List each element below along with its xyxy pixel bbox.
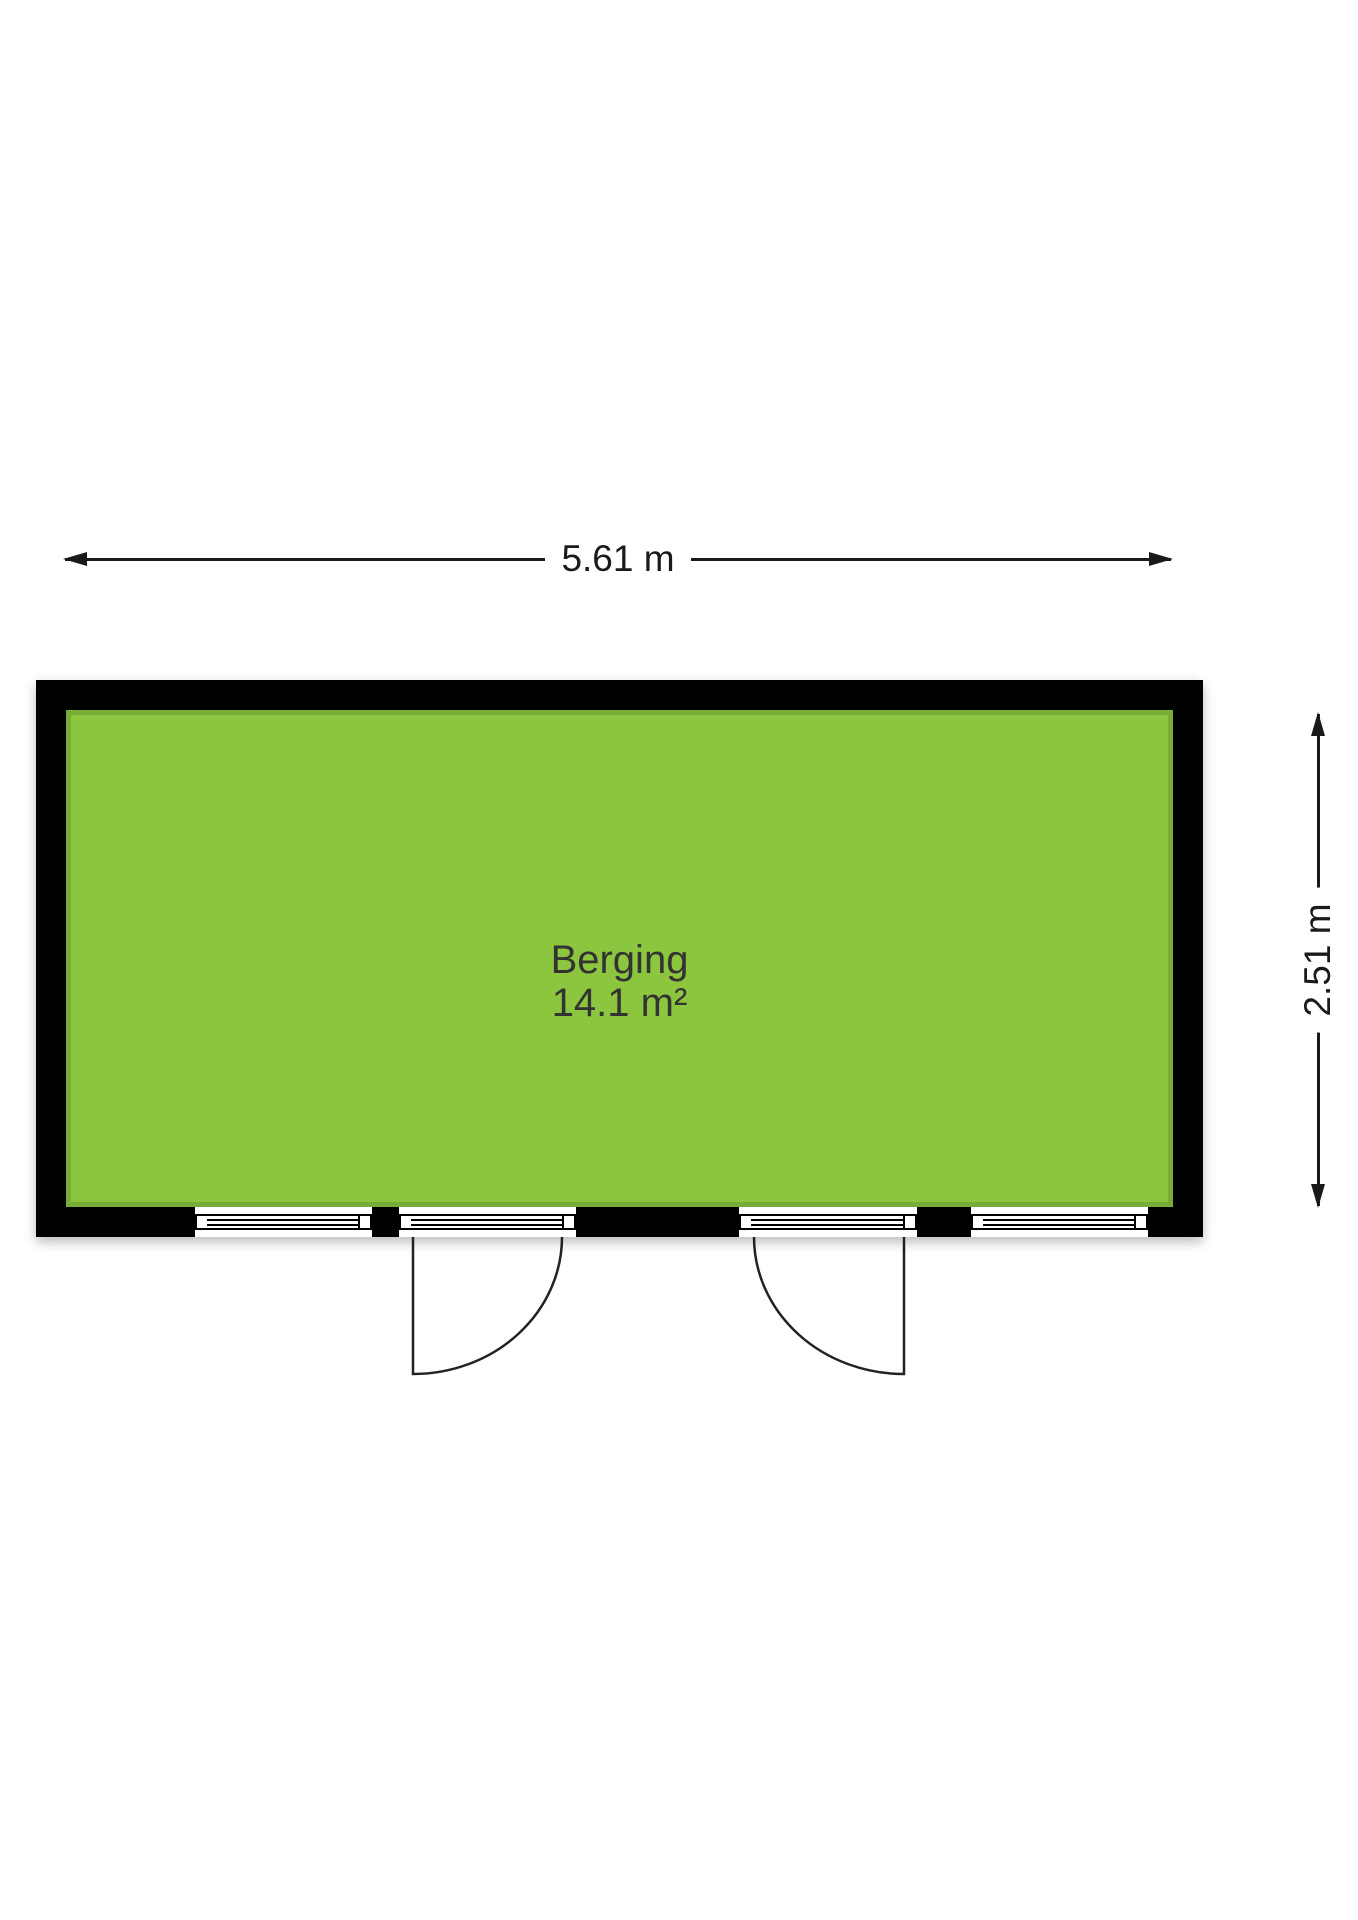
glazing-line xyxy=(207,1224,360,1226)
building-outline: Berging 14.1 m² xyxy=(36,680,1203,1237)
arrowhead-right-icon xyxy=(1149,552,1173,566)
width-dimension: 5.61 m xyxy=(63,542,1173,576)
glazing-line xyxy=(983,1224,1136,1226)
glazing-line xyxy=(983,1219,1136,1221)
room-label: Berging 14.1 m² xyxy=(71,939,1168,1025)
glazing-line xyxy=(411,1224,564,1226)
window-right xyxy=(971,1207,1148,1237)
arrowhead-left-icon xyxy=(63,552,87,566)
arrowhead-down-icon xyxy=(1311,1184,1325,1208)
door-right-swing xyxy=(754,1237,904,1374)
door-glazing xyxy=(411,1214,564,1230)
door-glazing xyxy=(751,1214,905,1230)
door-frame-cap xyxy=(562,1214,576,1230)
glazing-line xyxy=(751,1219,905,1221)
height-dimension: 2.51 m xyxy=(1303,712,1333,1208)
window-frame-cap xyxy=(358,1214,372,1230)
door-left-swing xyxy=(413,1237,562,1374)
window-left xyxy=(195,1207,372,1237)
floorplan-canvas: 5.61 m 2.51 m Berging 14.1 m² xyxy=(0,0,1358,1920)
door-frame-cap xyxy=(903,1214,917,1230)
room-name: Berging xyxy=(71,939,1168,982)
glazed-door-left xyxy=(399,1207,576,1237)
room-floor: Berging 14.1 m² xyxy=(66,710,1173,1207)
glazed-door-right xyxy=(739,1207,917,1237)
window-glazing xyxy=(983,1214,1136,1230)
width-dimension-label: 5.61 m xyxy=(545,542,690,576)
room-area: 14.1 m² xyxy=(71,982,1168,1025)
glazing-line xyxy=(411,1219,564,1221)
glazing-line xyxy=(207,1219,360,1221)
arrowhead-up-icon xyxy=(1311,712,1325,736)
window-glazing xyxy=(207,1214,360,1230)
window-frame-cap xyxy=(1134,1214,1148,1230)
glazing-line xyxy=(751,1224,905,1226)
height-dimension-label: 2.51 m xyxy=(1301,887,1335,1032)
